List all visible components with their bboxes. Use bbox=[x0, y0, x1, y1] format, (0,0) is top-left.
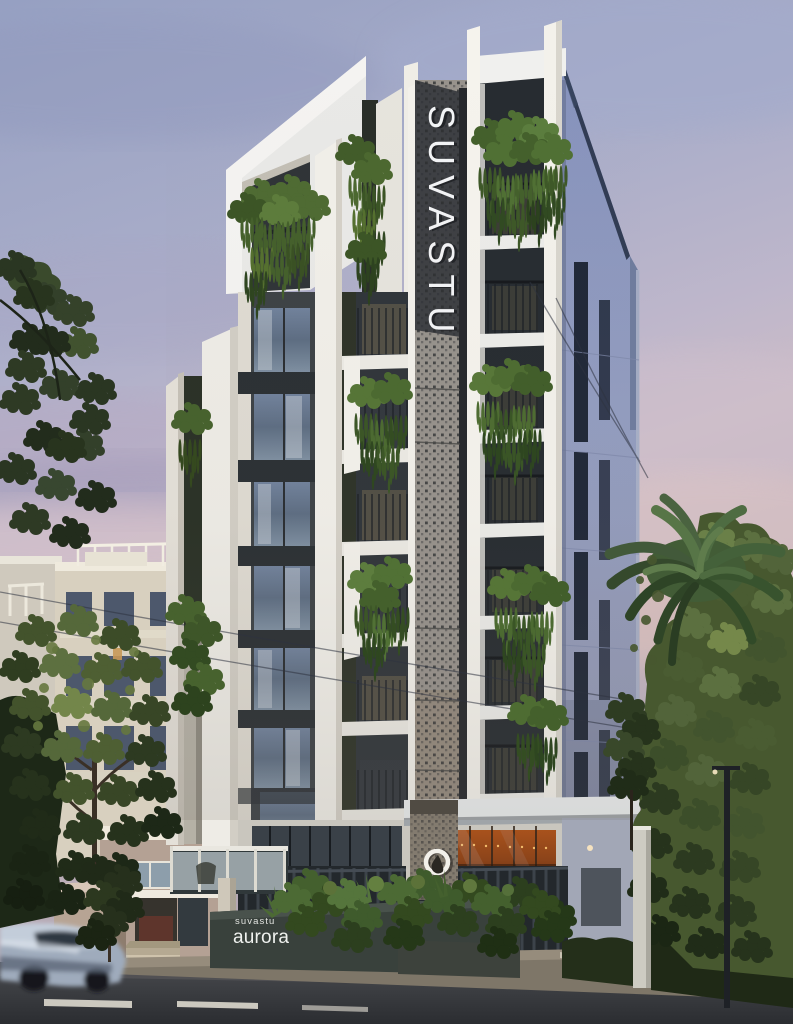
svg-text:suvastu: suvastu bbox=[235, 916, 275, 927]
svg-text:aurora: aurora bbox=[233, 927, 289, 948]
